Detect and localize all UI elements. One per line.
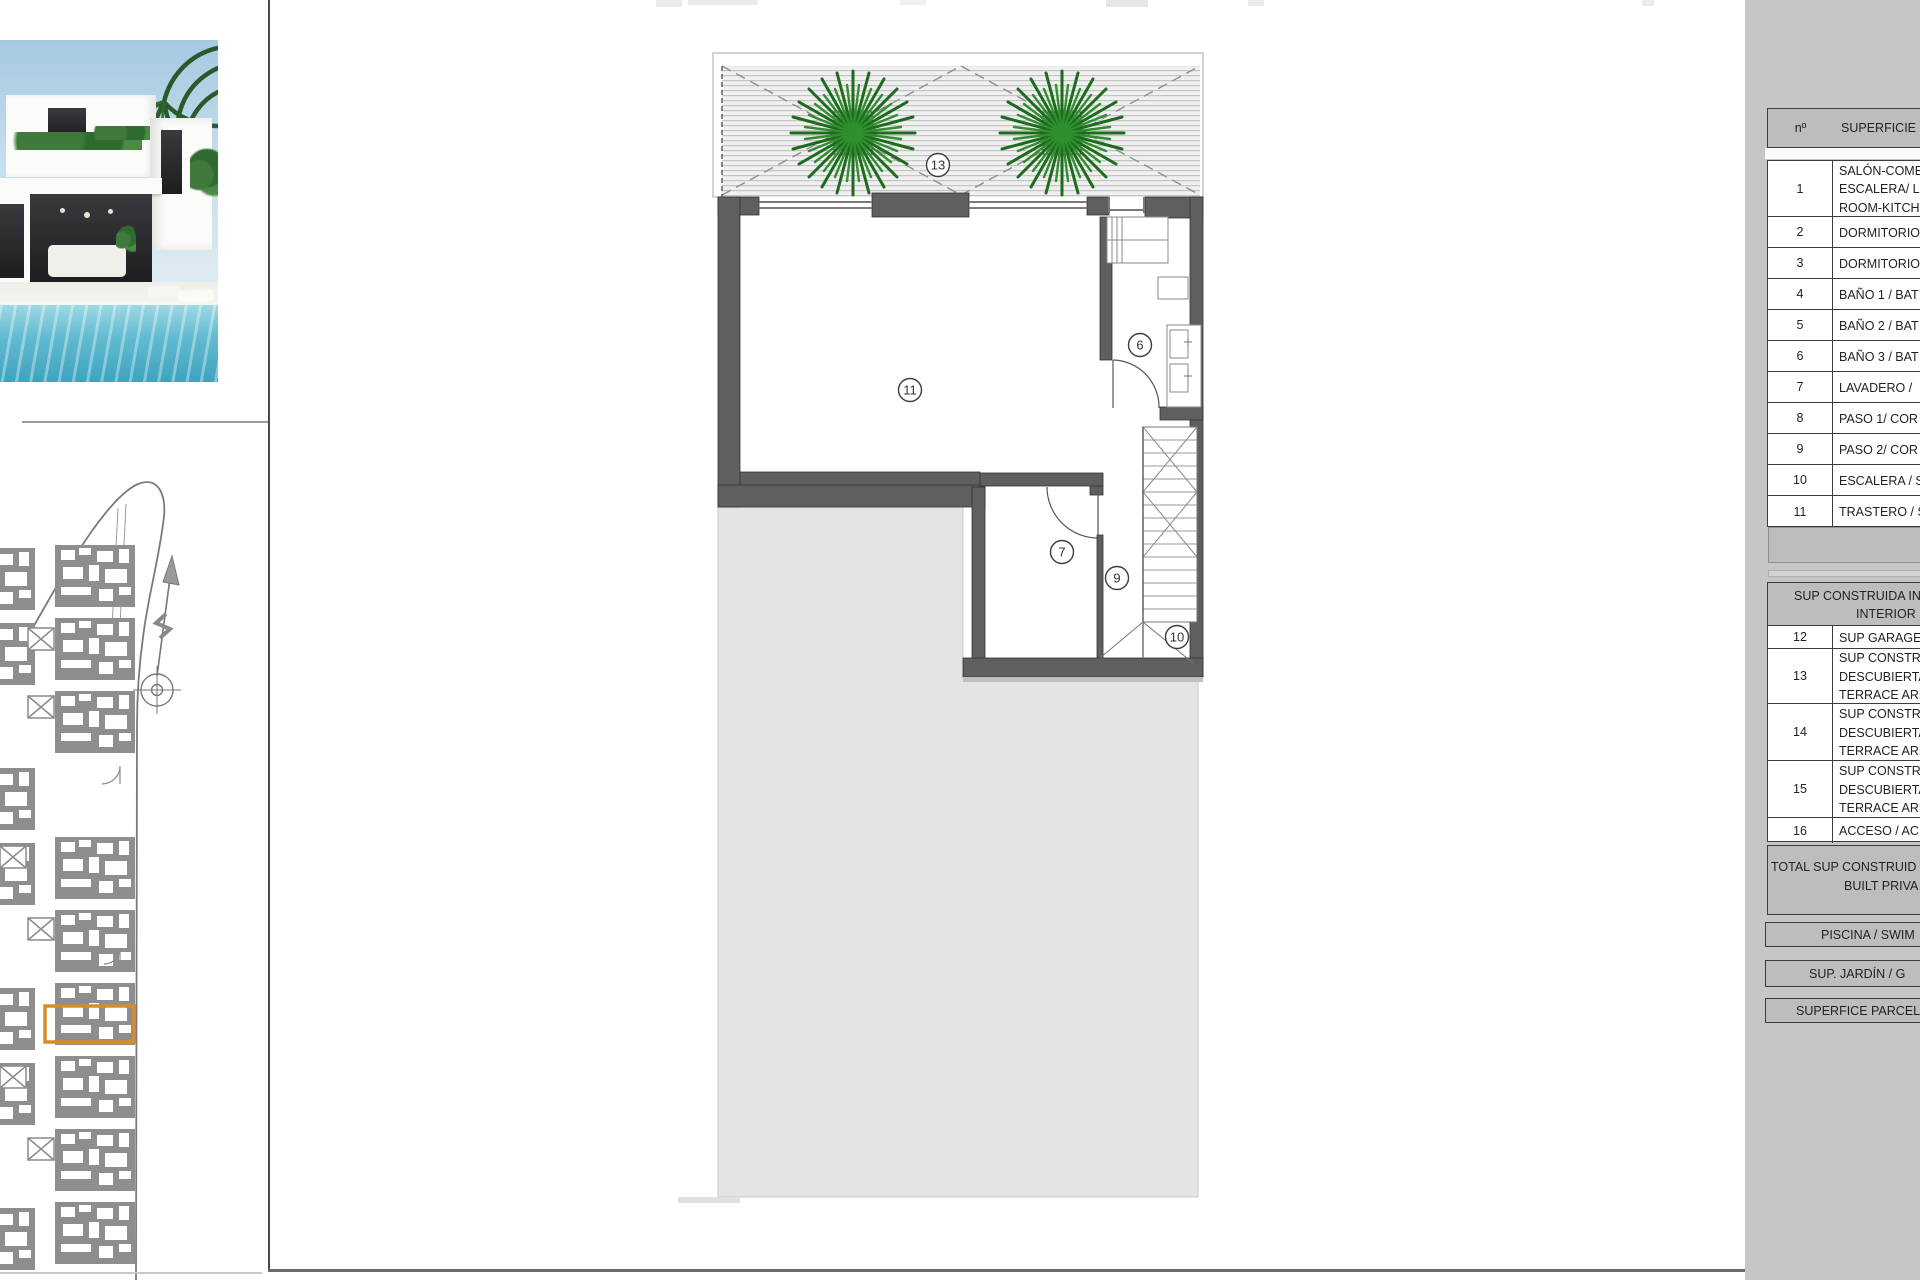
- sheet-frame-vertical: [268, 0, 270, 1271]
- table-row: 16 ACCESO / AC: [1768, 818, 1920, 843]
- table-spacer-band: [1768, 527, 1920, 563]
- left-column-divider: [22, 421, 268, 423]
- villa-photo: [0, 40, 218, 382]
- section-header: SUP CONSTRUIDA IN INTERIOR: [1768, 583, 1920, 626]
- photo-left-glass: [0, 204, 24, 278]
- table-row: 15 SUP CONSTRUDESCUBIERTATERRACE ARE: [1768, 761, 1920, 818]
- ground-slab: [718, 507, 1198, 1197]
- top-edge-smudge: [688, 0, 758, 5]
- top-edge-smudge: [656, 0, 682, 7]
- table-row: 2 DORMITORIO: [1768, 217, 1920, 248]
- sheet-frame-bottom: [268, 1269, 1747, 1272]
- table-row: 7 LAVADERO /: [1768, 372, 1920, 403]
- table-body-useful-area: 1 SALÓN-COMEESCALERA/ LIROOM-KITCH 2 DOR…: [1767, 160, 1920, 527]
- total-built-row: TOTAL SUP CONSTRUID BUILT PRIVA: [1767, 845, 1920, 915]
- summary-row-plot: SUPERFICE PARCEL: [1765, 998, 1920, 1023]
- label-storage: 11: [903, 383, 917, 398]
- table-row: 9 PASO 2/ COR: [1768, 434, 1920, 465]
- photo-vines: [190, 140, 218, 210]
- top-edge-smudge: [1248, 0, 1264, 6]
- table-row: 11 TRASTERO / S: [1768, 496, 1920, 527]
- label-stairs: 10: [1170, 630, 1184, 645]
- photo-lamp: [84, 212, 90, 218]
- table-thin-band: [1768, 570, 1920, 577]
- table-header-gap: [1765, 148, 1920, 159]
- table-row: 13 SUP CONSTRUDESCUBIERTATERRACE ARE: [1768, 649, 1920, 704]
- table-row: 4 BAÑO 1 / BAT: [1768, 279, 1920, 310]
- door-swings: [1047, 360, 1159, 538]
- terrace-area: [713, 53, 1203, 197]
- surface-table-panel: nº SUPERFICIE Ú 1 SALÓN-COMEESCALERA/ LI…: [1745, 0, 1920, 1280]
- photo-lounger: [178, 289, 215, 303]
- photo-lamp: [108, 209, 113, 214]
- summary-row-garden: SUP. JARDÍN / G: [1765, 960, 1920, 987]
- palm-tree-icon: [1000, 71, 1124, 195]
- table-row: 5 BAÑO 2 / BAT: [1768, 310, 1920, 341]
- summary-row-pool: PISCINA / SWIM: [1765, 922, 1920, 947]
- table-row: 14 SUP CONSTRUDESCUBIERTATERRACE ARE: [1768, 704, 1920, 761]
- photo-lamp: [60, 208, 65, 213]
- table-header: nº SUPERFICIE Ú: [1767, 108, 1920, 148]
- table-row: 10 ESCALERA / S: [1768, 465, 1920, 496]
- top-edge-smudge: [1642, 0, 1654, 6]
- table-row: 8 PASO 1/ COR: [1768, 403, 1920, 434]
- header-no: nº: [1768, 109, 1833, 147]
- top-edge-smudge: [900, 0, 926, 5]
- table-row: 1 SALÓN-COMEESCALERA/ LIROOM-KITCH: [1768, 161, 1920, 217]
- photo-tower-window: [161, 130, 182, 194]
- north-arrow-icon: [133, 556, 181, 714]
- photo-pool: [0, 305, 218, 382]
- photo-plant: [116, 222, 136, 258]
- photo-parapet-plants: [92, 126, 154, 140]
- architectural-plan-sheet: 13 11 6 7 9 10 nº SUPERFICIE Ú 1 SALÓN-C…: [0, 0, 1920, 1280]
- palm-tree-icon: [791, 71, 915, 195]
- photo-lounger: [148, 285, 181, 298]
- table-body-built-area: SUP CONSTRUIDA IN INTERIOR 12 SUP GARAGE…: [1767, 582, 1920, 842]
- label-laundry: 7: [1058, 545, 1065, 560]
- table-row: 3 DORMITORIO: [1768, 248, 1920, 279]
- label-corridor: 9: [1113, 571, 1120, 586]
- label-terrace: 13: [931, 158, 945, 173]
- table-row: 6 BAÑO 3 / BAT: [1768, 341, 1920, 372]
- photo-sofa: [48, 245, 126, 277]
- floor-plan: 13 11 6 7 9 10: [678, 40, 1208, 1220]
- top-edge-smudge: [1106, 0, 1148, 7]
- header-title: SUPERFICIE Ú: [1841, 121, 1920, 135]
- label-bathroom: 6: [1136, 338, 1143, 353]
- site-plan: [0, 478, 222, 1280]
- table-row: 12 SUP GARAGE,: [1768, 626, 1920, 649]
- site-plan-baseline: [0, 1272, 262, 1274]
- bathroom-fixtures: [1107, 217, 1201, 407]
